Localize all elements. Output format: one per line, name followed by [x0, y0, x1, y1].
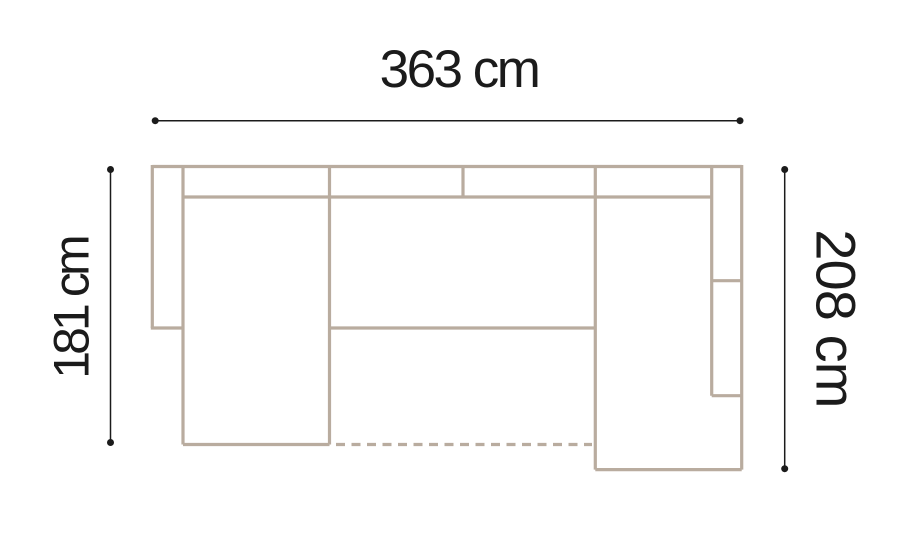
svg-text:208 cm: 208 cm	[805, 229, 868, 407]
svg-text:181 cm: 181 cm	[44, 237, 100, 379]
svg-text:363 cm: 363 cm	[380, 40, 539, 99]
